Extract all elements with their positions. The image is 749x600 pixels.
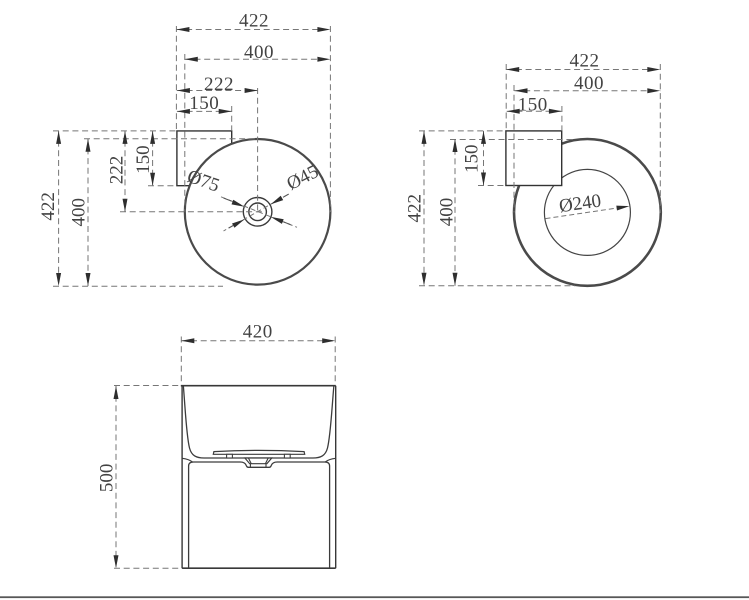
svg-text:422: 422 [38, 192, 59, 221]
svg-text:Ø75: Ø75 [184, 166, 222, 197]
svg-text:222: 222 [107, 156, 128, 185]
svg-text:400: 400 [574, 73, 604, 94]
svg-text:400: 400 [68, 198, 89, 227]
svg-text:Ø45: Ø45 [283, 161, 322, 195]
svg-text:422: 422 [405, 194, 426, 223]
svg-text:150: 150 [462, 145, 483, 174]
svg-text:400: 400 [244, 42, 274, 63]
svg-text:422: 422 [239, 11, 269, 32]
svg-text:Ø240: Ø240 [558, 190, 603, 217]
svg-text:400: 400 [436, 198, 457, 227]
svg-text:422: 422 [570, 51, 600, 72]
svg-text:150: 150 [189, 93, 219, 114]
svg-text:420: 420 [243, 321, 273, 342]
svg-text:500: 500 [97, 464, 118, 493]
svg-text:150: 150 [133, 145, 154, 174]
svg-text:150: 150 [518, 95, 548, 116]
